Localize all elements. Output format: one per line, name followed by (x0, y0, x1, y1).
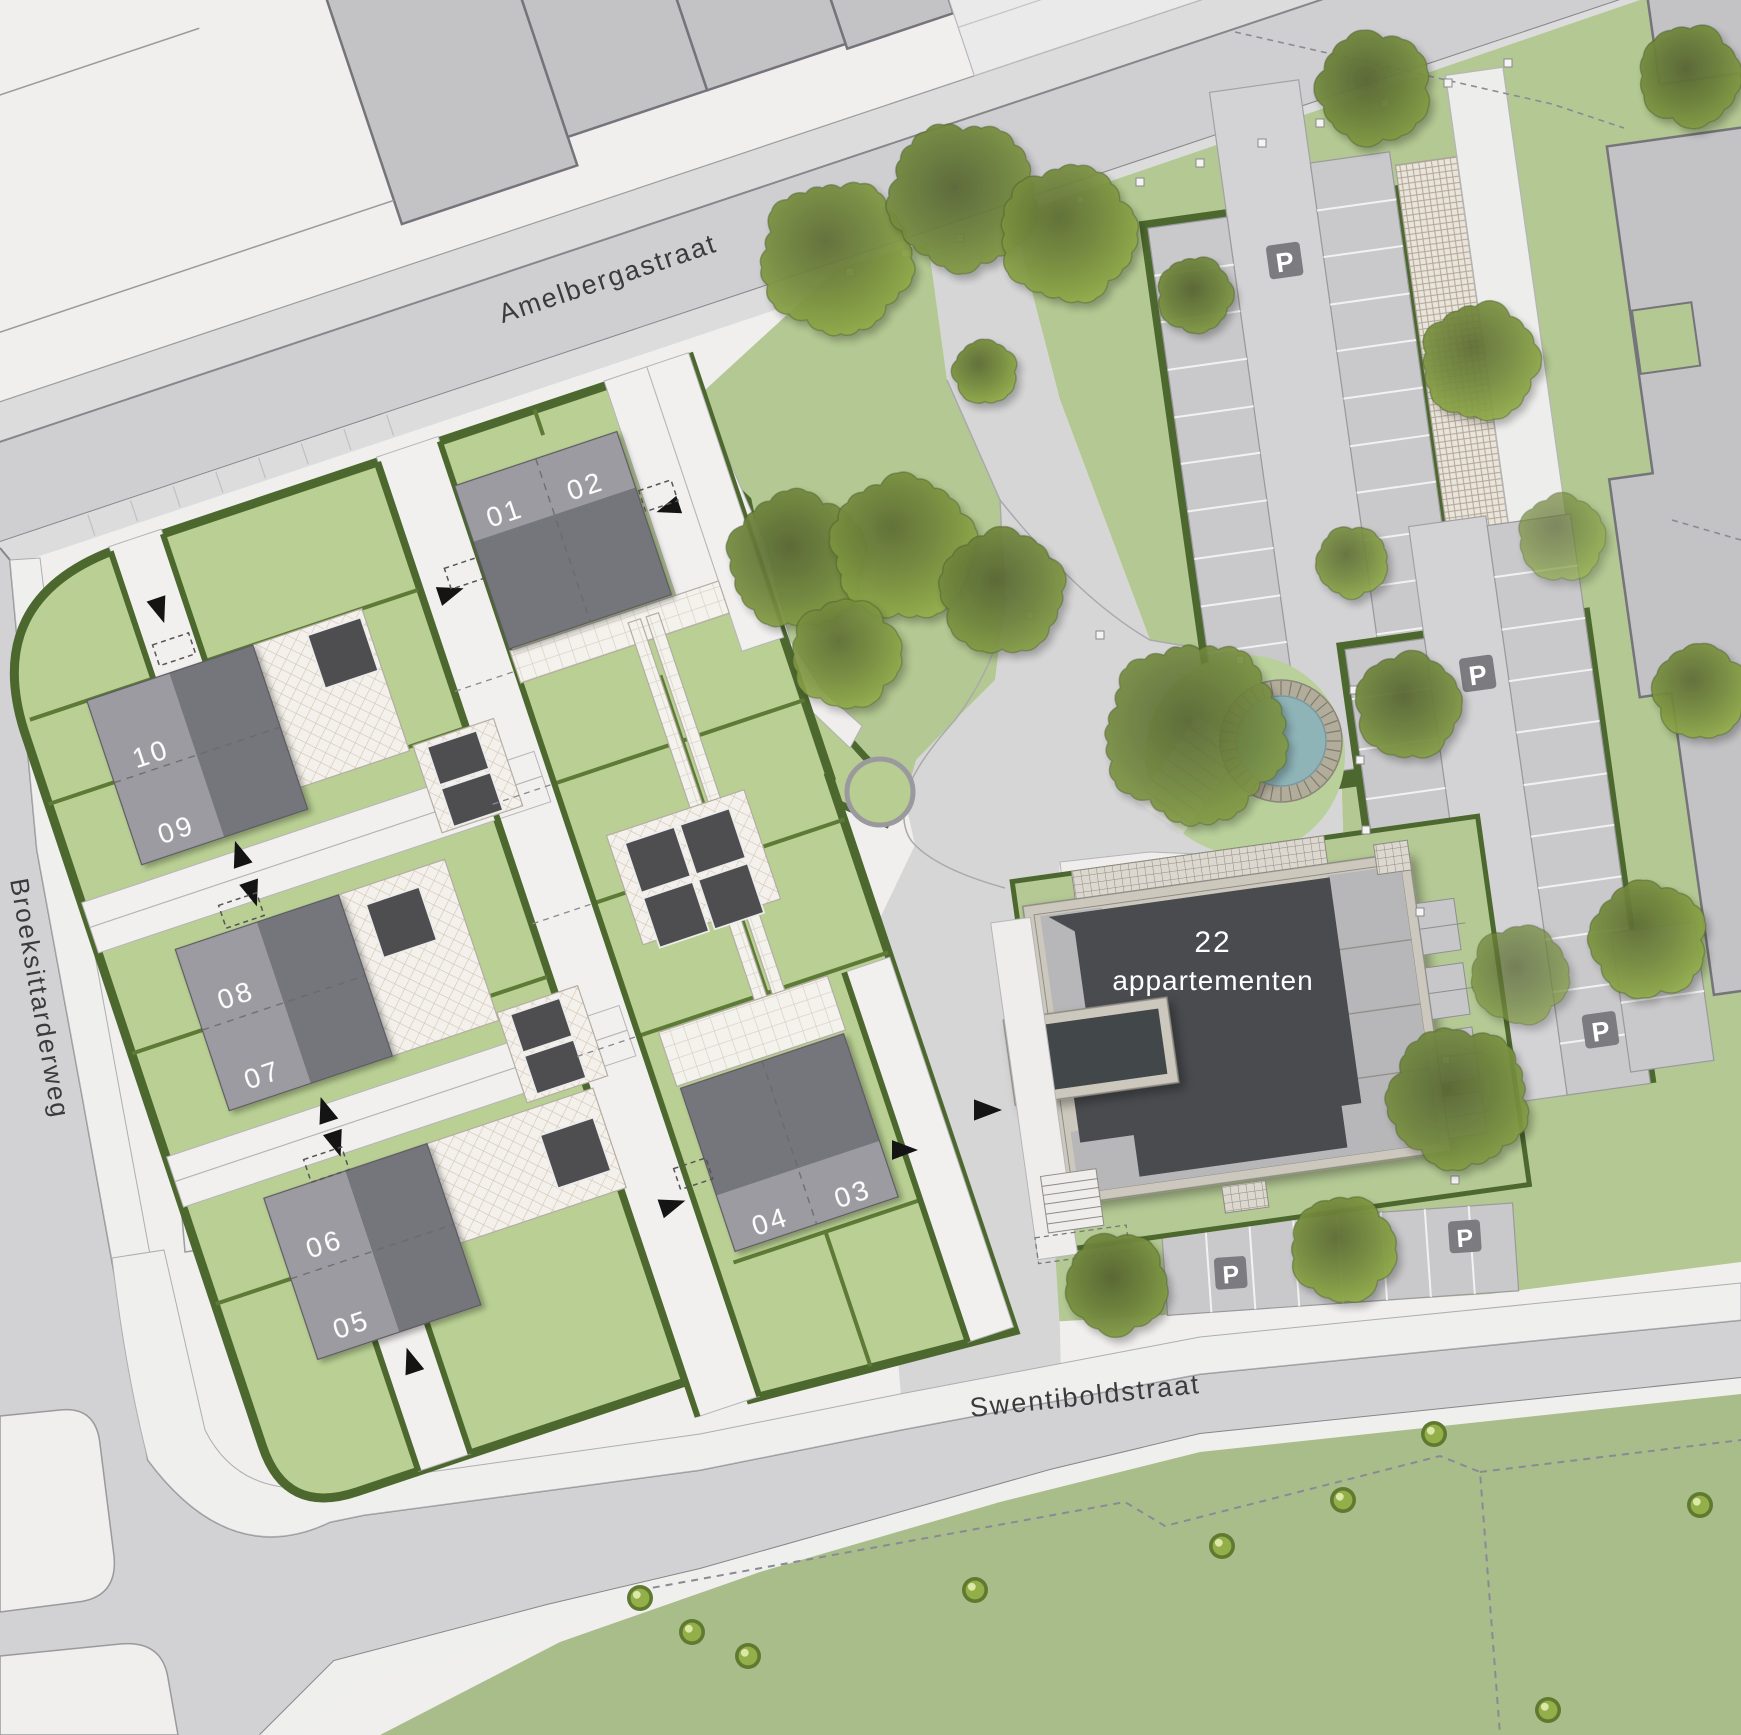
svg-text:appartementen: appartementen (1112, 965, 1313, 996)
svg-text:22: 22 (1194, 926, 1231, 959)
svg-text:P: P (1222, 1261, 1241, 1290)
svg-text:P: P (1456, 1224, 1475, 1253)
